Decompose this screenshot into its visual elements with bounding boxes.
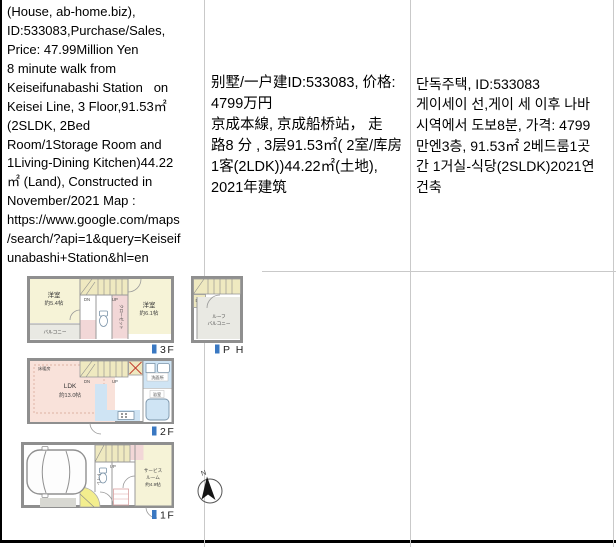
- sink-icon: [158, 364, 170, 373]
- north-compass-icon: N: [198, 470, 222, 503]
- small-closet-room: [81, 320, 96, 339]
- text-line: 京成本線, 京成船桥站， 走: [211, 115, 410, 136]
- floor-label-ph: P H: [223, 344, 245, 356]
- room-size-label: 約6.1帖: [140, 309, 159, 317]
- stairs-dn-label: DN: [84, 379, 90, 384]
- text-line: 别墅/一户建ID:533083, 价格:: [211, 73, 410, 94]
- bath-label: 浴室: [153, 391, 161, 398]
- floorplan-ph: DN ルーフ バルコニー P H: [193, 278, 245, 357]
- text-line: November/2021 Map :: [7, 192, 204, 211]
- text-line: 1Living-Dining Kitchen)44.22: [7, 154, 204, 173]
- stove-icon: [118, 412, 134, 420]
- ldk-label: LDK: [64, 383, 77, 390]
- floorplan-1f: UP トイレ: [23, 444, 176, 522]
- room-label: 洋室: [48, 290, 61, 299]
- text-line: 2021年建筑: [211, 178, 410, 199]
- stairs-up-label: UP: [112, 379, 118, 384]
- storage-box: [131, 445, 144, 460]
- floor-marker-icon: [152, 510, 157, 519]
- toilet-icon: [100, 311, 108, 327]
- stairs-dn-label: DN: [84, 297, 90, 302]
- floor-marker-icon: [152, 427, 157, 436]
- floor-heating-label: 床暖房: [38, 365, 51, 372]
- balcony-label: バルコニー: [44, 330, 67, 335]
- room-size-label: 約5.4帖: [45, 299, 64, 307]
- text-line: Keiseifunabashi Station on: [7, 79, 204, 98]
- stairs-up-label: UP: [110, 464, 116, 469]
- vent-box-icon: [129, 361, 143, 375]
- floorplan-2f: 床暖房 DN UP 洗面所 浴室: [29, 360, 176, 439]
- driveway-pad: [40, 498, 76, 507]
- stairs-up-label: UP: [112, 297, 118, 302]
- row-divider: [262, 271, 616, 272]
- listing-cell-chinese: 别墅/一户建ID:533083, 价格: 4799万円 京成本線, 京成船桥站，…: [205, 0, 410, 271]
- stairs-1f: [95, 445, 130, 462]
- toilet-label: トイレ: [97, 473, 102, 486]
- property-listing-sheet: (House, ab-home.biz), ID:533083,Purchase…: [0, 0, 616, 547]
- text-line: 만엔3층, 91.53㎡ 2베드룸1곳: [416, 136, 613, 157]
- map-url-line: /search/?api=1&query=Keiseif: [7, 230, 204, 249]
- text-line: ID:533083,Purchase/Sales,: [7, 22, 204, 41]
- washroom-label: 洗面所: [151, 374, 164, 381]
- shoe-cabinet: [114, 489, 129, 505]
- text-line: 단독주택, ID:533083: [416, 74, 613, 95]
- floorplan-image: 洋室 約5.4帖 洋室 約6.1帖 バルコニー DN UP クローゼット 3F …: [0, 270, 270, 547]
- roof-balcony-label: ルーフ: [212, 314, 226, 319]
- text-line: (2SLDK, 2Bed: [7, 117, 204, 136]
- text-line: Keisei Line, 3 Floor,91.53㎡: [7, 98, 204, 117]
- text-line: ㎡ (Land), Constructed in: [7, 173, 204, 192]
- north-label: N: [200, 470, 207, 478]
- text-line: 건축: [416, 177, 613, 198]
- text-line: 1客(2LDK))44.22㎡(土地),: [211, 157, 410, 178]
- floor-label-1f: 1F: [160, 510, 175, 522]
- listing-cell-english: (House, ab-home.biz), ID:533083,Purchase…: [2, 0, 204, 271]
- text-line: (House, ab-home.biz),: [7, 3, 204, 22]
- text-line: 4799万円: [211, 94, 410, 115]
- kitchen-counter: [95, 384, 107, 411]
- bathtub-icon: [146, 399, 169, 420]
- stairs-ph: [194, 279, 241, 294]
- right-border: [613, 0, 614, 547]
- listing-cell-korean: 단독주택, ID:533083 게이세이 선,게이 세 이후 나바 시역에서 도…: [411, 0, 613, 271]
- roof-balcony-label: バルコニー: [208, 321, 231, 326]
- text-line: Room/1Storage Room and: [7, 136, 204, 155]
- text-line: 路8 分 , 3层91.53㎡( 2室/库房: [211, 136, 410, 157]
- text-line: 간 1거실-식당(2SLDK)2021연: [416, 156, 613, 177]
- floorplan-3f: 洋室 約5.4帖 洋室 約6.1帖 バルコニー DN UP クローゼット 3F: [29, 278, 176, 357]
- text-line: 게이세이 선,게이 세 이후 나바: [416, 94, 613, 115]
- floor-marker-icon: [215, 345, 220, 354]
- service-room-label: サービス: [144, 467, 163, 474]
- room-label: 洋室: [143, 300, 156, 309]
- map-url-line: https://www.google.com/maps: [7, 211, 204, 230]
- floor-marker-icon: [152, 345, 157, 354]
- floor-label-2f: 2F: [160, 426, 175, 438]
- text-line: 시역에서 도보8분, 가격: 4799: [416, 115, 613, 136]
- service-room-label: ルーム: [146, 475, 160, 480]
- text-line: Price: 47.99Million Yen: [7, 41, 204, 60]
- car-icon: [27, 447, 86, 498]
- map-url-line: unabashi+Station&hl=en: [7, 249, 204, 268]
- floor-label-3f: 3F: [160, 344, 175, 356]
- ldk-size-label: 約13.0帖: [59, 391, 81, 399]
- text-line: 8 minute walk from: [7, 60, 204, 79]
- closet-label: クローゼット: [118, 304, 125, 329]
- service-room-size: 約4.9帖: [145, 481, 161, 488]
